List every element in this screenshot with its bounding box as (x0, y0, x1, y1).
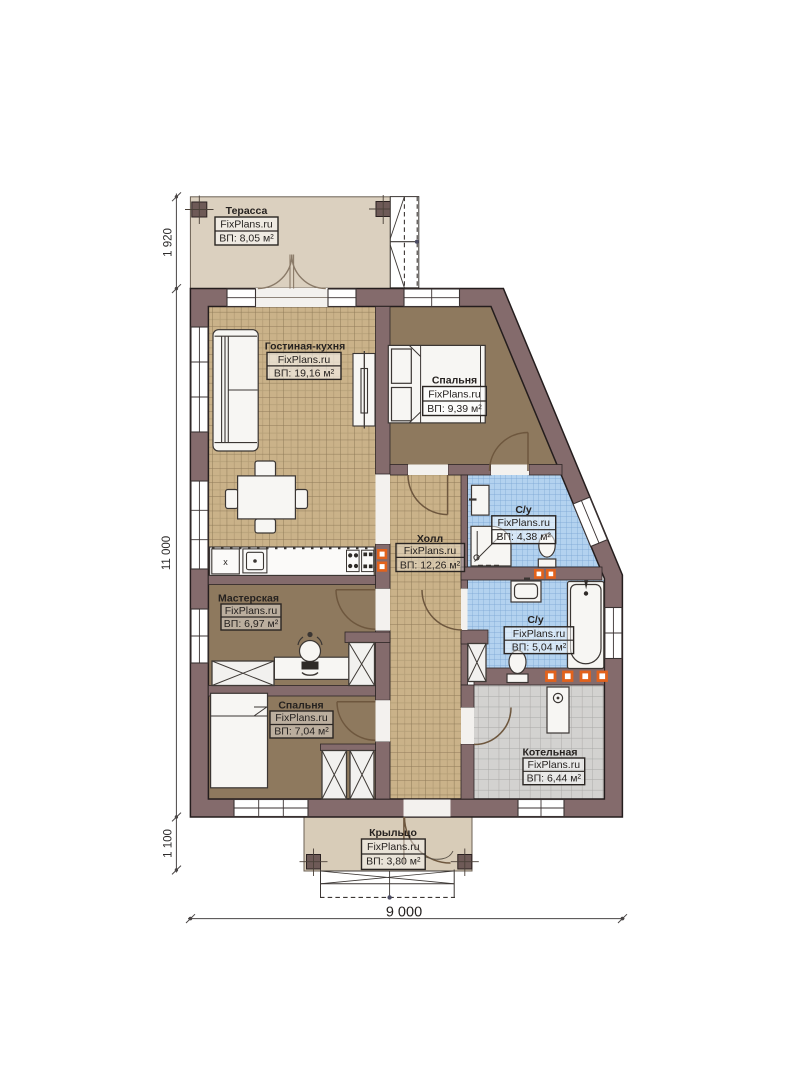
svg-text:FixPlans.ru: FixPlans.ru (275, 712, 328, 724)
svg-text:1 920: 1 920 (163, 228, 175, 257)
svg-text:Спальня: Спальня (278, 700, 323, 712)
svg-text:FixPlans.ru: FixPlans.ru (220, 219, 273, 231)
svg-text:ВП: 7,04 м²: ВП: 7,04 м² (274, 726, 329, 738)
svg-text:FixPlans.ru: FixPlans.ru (528, 759, 581, 771)
svg-text:ВП: 6,97 м²: ВП: 6,97 м² (224, 618, 279, 630)
svg-text:FixPlans.ru: FixPlans.ru (513, 628, 566, 640)
svg-text:FixPlans.ru: FixPlans.ru (404, 545, 457, 557)
svg-text:FixPlans.ru: FixPlans.ru (367, 841, 420, 853)
svg-text:ВП: 4,38 м²: ВП: 4,38 м² (496, 531, 551, 543)
svg-text:11 000: 11 000 (161, 536, 173, 570)
svg-text:ВП: 5,04 м²: ВП: 5,04 м² (512, 642, 567, 654)
svg-text:ВП: 8,05 м²: ВП: 8,05 м² (219, 233, 274, 245)
svg-text:ВП: 6,44 м²: ВП: 6,44 м² (527, 772, 582, 784)
svg-text:ВП: 3,80 м²: ВП: 3,80 м² (366, 856, 421, 868)
svg-text:Котельная: Котельная (523, 747, 578, 759)
svg-text:Спальня: Спальня (432, 375, 477, 387)
svg-text:ВП: 9,39 м²: ВП: 9,39 м² (427, 403, 482, 415)
svg-text:ВП: 19,16 м²: ВП: 19,16 м² (274, 367, 335, 379)
svg-text:ВП: 12,26 м²: ВП: 12,26 м² (400, 559, 461, 571)
svg-text:С/у: С/у (527, 614, 544, 626)
svg-text:FixPlans.ru: FixPlans.ru (428, 389, 481, 401)
svg-text:Терасса: Терасса (226, 205, 268, 217)
svg-text:Мастерская: Мастерская (218, 593, 279, 605)
svg-text:Гостиная-кухня: Гостиная-кухня (265, 341, 345, 353)
svg-text:9 000: 9 000 (386, 905, 422, 921)
svg-text:FixPlans.ru: FixPlans.ru (225, 605, 278, 617)
svg-text:FixPlans.ru: FixPlans.ru (497, 517, 550, 529)
svg-text:FixPlans.ru: FixPlans.ru (278, 354, 331, 366)
svg-text:x: x (223, 557, 228, 567)
svg-text:1 100: 1 100 (163, 829, 175, 858)
svg-text:С/у: С/у (515, 504, 532, 516)
svg-text:Крыльцо: Крыльцо (369, 827, 417, 839)
